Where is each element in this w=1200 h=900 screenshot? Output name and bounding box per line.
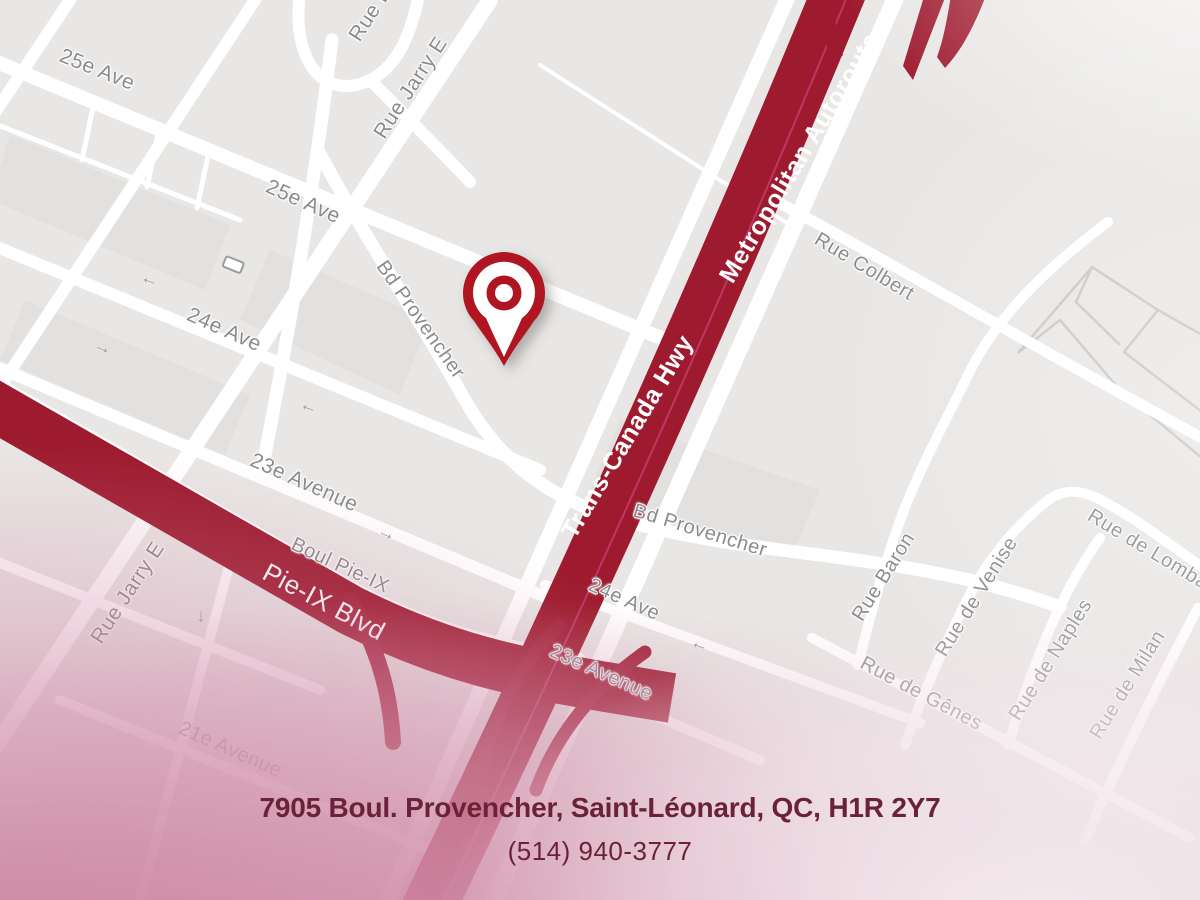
- one-way-arrow-icon: ←: [688, 631, 712, 657]
- highway-label: Metropolitan Autoroute: [714, 28, 886, 288]
- street-label: Bd Provencher: [630, 500, 769, 563]
- one-way-arrow-icon: ←: [297, 393, 321, 419]
- location-caption: 7905 Boul. Provencher, Saint-Léonard, QC…: [0, 792, 1200, 867]
- one-way-arrow-icon: ↓: [197, 606, 206, 627]
- street-label: 23e Avenue: [246, 449, 361, 518]
- map-view[interactable]: 25e Ave 25e Ave Rue Jarry E Rue Jarry E …: [0, 0, 1200, 900]
- one-way-arrow-icon: ←: [138, 266, 162, 292]
- phone-text: (514) 940-3777: [0, 836, 1200, 867]
- street-label: Rue B: [344, 0, 397, 46]
- street-label: Rue de Lombardie: [1083, 505, 1200, 614]
- street-labels: 25e Ave 25e Ave Rue Jarry E Rue Jarry E …: [0, 0, 1200, 900]
- street-label: Rue de Venise: [931, 533, 1023, 661]
- street-label: 21e Avenue: [175, 717, 285, 783]
- one-way-arrow-icon: →: [91, 334, 116, 360]
- street-label: 25e Ave: [56, 44, 138, 96]
- street-label: Rue Jarry E: [86, 538, 170, 649]
- street-label: Bd Provencher: [371, 257, 469, 384]
- street-label: 23e Avenue: [546, 640, 656, 706]
- street-label: Rue de Gênes: [856, 652, 986, 736]
- street-label: Rue Jarry E: [369, 33, 453, 144]
- street-label: 25e Ave: [262, 175, 344, 229]
- address-text: 7905 Boul. Provencher, Saint-Léonard, QC…: [0, 792, 1200, 824]
- street-label: Rue Colbert: [810, 228, 918, 306]
- street-label: Rue de Naples: [1004, 595, 1097, 725]
- street-label: 24e Ave: [585, 574, 663, 626]
- street-label: Rue de Milan: [1085, 626, 1170, 743]
- street-label: Rue Baron: [848, 528, 921, 625]
- one-way-arrow-icon: →: [375, 520, 400, 547]
- street-label: 24e Ave: [183, 303, 265, 357]
